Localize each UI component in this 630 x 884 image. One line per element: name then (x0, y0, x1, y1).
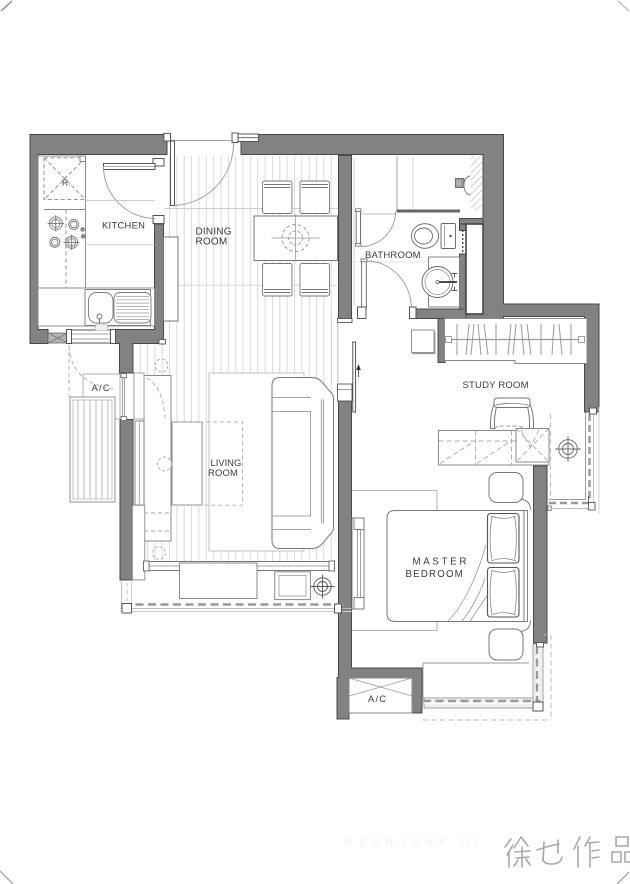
svg-text:BATHROOM: BATHROOM (365, 250, 421, 261)
svg-text:KITCHEN: KITCHEN (102, 219, 145, 230)
svg-text:STUDY ROOM: STUDY ROOM (463, 380, 529, 391)
svg-text:MASTER: MASTER (413, 557, 470, 568)
svg-text:NEZNJOVA HL: NEZNJOVA HL (345, 837, 488, 849)
svg-text:A/C: A/C (92, 382, 111, 393)
svg-text:BEDROOM: BEDROOM (406, 569, 464, 580)
svg-text:ROOM: ROOM (208, 467, 238, 478)
svg-text:R.: R. (62, 178, 71, 188)
svg-text:ROOM: ROOM (196, 236, 228, 247)
svg-text:A/C: A/C (368, 693, 387, 704)
